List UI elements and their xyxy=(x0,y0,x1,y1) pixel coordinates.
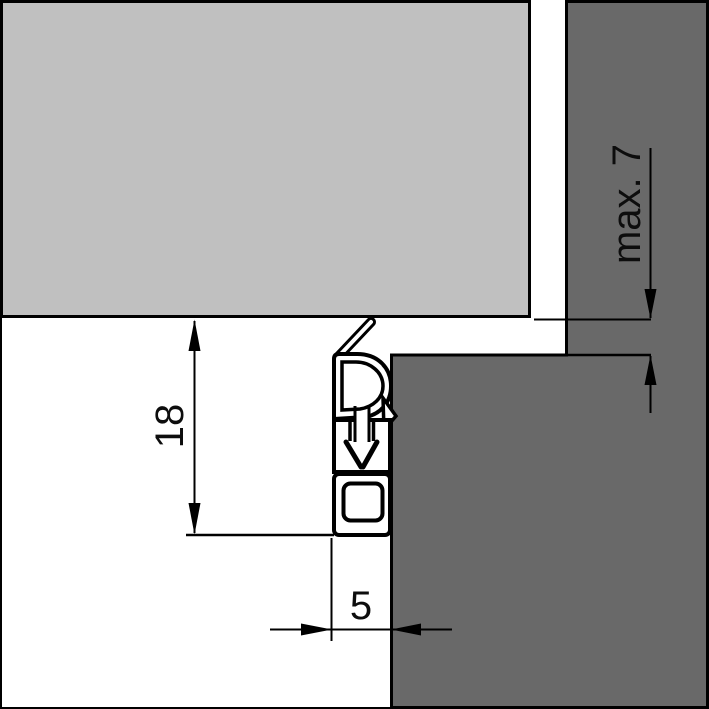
door-panel xyxy=(2,2,530,317)
technical-drawing-canvas: 18 max. 7 5 xyxy=(0,0,709,709)
seal-chamber-cavity xyxy=(344,484,383,521)
dimension-5-label: 5 xyxy=(350,584,372,628)
seal-stem-core xyxy=(356,412,369,440)
seal-bulb-cavity xyxy=(342,362,383,410)
dimension-max7-label: max. 7 xyxy=(605,144,649,264)
cross-section-diagram: 18 max. 7 5 xyxy=(0,0,709,709)
dimension-18-label: 18 xyxy=(148,404,192,449)
